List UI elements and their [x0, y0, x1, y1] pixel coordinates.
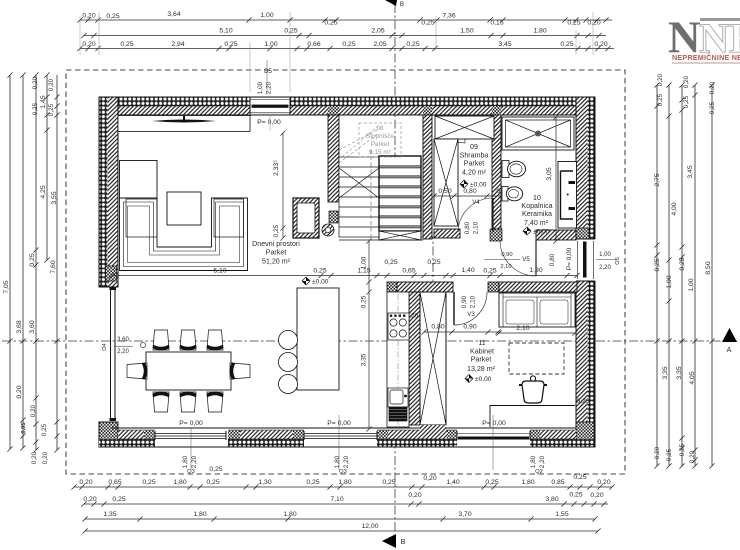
svg-text:5,10: 5,10	[219, 28, 232, 35]
svg-text:0,25: 0,25	[679, 443, 686, 456]
svg-text:0,20: 0,20	[587, 20, 600, 27]
svg-text:2,10: 2,10	[516, 325, 529, 332]
svg-text:3,35: 3,35	[361, 353, 368, 366]
svg-text:1,00: 1,00	[257, 81, 264, 94]
svg-text:Parket: Parket	[471, 356, 492, 364]
svg-text:3,05: 3,05	[546, 167, 553, 180]
svg-text:10: 10	[533, 194, 541, 202]
svg-text:3,35: 3,35	[662, 366, 669, 379]
svg-text:2,20: 2,20	[266, 81, 273, 94]
svg-text:0,25: 0,25	[209, 466, 222, 473]
svg-text:1,80: 1,80	[193, 511, 206, 518]
svg-text:13,28 m²: 13,28 m²	[467, 365, 496, 373]
svg-text:±0,00: ±0,00	[533, 229, 550, 236]
svg-text:2,75: 2,75	[654, 173, 661, 186]
svg-text:0,25: 0,25	[313, 268, 326, 275]
svg-text:D5: D5	[264, 68, 272, 75]
svg-text:0,20: 0,20	[657, 73, 664, 86]
svg-text:0,25: 0,25	[206, 479, 219, 486]
svg-text:1,30: 1,30	[258, 479, 271, 486]
svg-text:3,64: 3,64	[167, 11, 180, 18]
svg-text:P= 0,00: P= 0,00	[179, 420, 203, 427]
svg-text:0,20: 0,20	[689, 450, 696, 463]
svg-text:6,15 m²: 6,15 m²	[369, 149, 391, 156]
svg-text:Kopalnica: Kopalnica	[521, 202, 552, 210]
svg-text:0,25: 0,25	[560, 41, 573, 48]
svg-text:4,05: 4,05	[689, 371, 696, 384]
svg-text:11: 11	[478, 339, 485, 347]
svg-text:0,25: 0,25	[654, 258, 661, 271]
svg-text:0,80: 0,80	[549, 253, 556, 266]
svg-text:4,20 m²: 4,20 m²	[462, 169, 487, 177]
svg-text:0,90: 0,90	[463, 324, 476, 331]
svg-text:V5: V5	[522, 256, 530, 263]
svg-text:4,00: 4,00	[671, 202, 678, 215]
svg-text:1,80: 1,80	[182, 455, 189, 468]
svg-text:1,40: 1,40	[461, 267, 474, 274]
svg-text:0,25: 0,25	[573, 474, 586, 481]
svg-text:7,40 m²: 7,40 m²	[524, 219, 549, 227]
svg-text:2,33⁵: 2,33⁵	[273, 160, 280, 176]
svg-text:1,50: 1,50	[460, 28, 473, 35]
svg-text:Dnevni prostori: Dnevni prostori	[252, 240, 300, 248]
svg-text:0,25: 0,25	[666, 448, 673, 461]
svg-text:Keramika: Keramika	[522, 210, 552, 218]
svg-text:0,25: 0,25	[142, 479, 155, 486]
svg-text:0,05: 0,05	[21, 422, 27, 434]
svg-text:0,25: 0,25	[32, 102, 39, 115]
svg-text:0,25: 0,25	[112, 496, 125, 503]
svg-text:1,45: 1,45	[40, 95, 47, 108]
svg-text:0,20: 0,20	[654, 446, 661, 459]
svg-text:0,25: 0,25	[427, 259, 440, 266]
svg-text:2,10: 2,10	[473, 221, 480, 234]
svg-text:P= 0,00: P= 0,00	[566, 247, 573, 270]
svg-text:1,80: 1,80	[173, 479, 186, 486]
svg-text:1,80: 1,80	[338, 479, 351, 486]
svg-text:0,80: 0,80	[464, 221, 471, 234]
svg-text:0,20: 0,20	[423, 475, 436, 482]
svg-text:1,00: 1,00	[666, 275, 673, 288]
svg-text:0,20: 0,20	[683, 75, 690, 88]
svg-text:0,25: 0,25	[342, 41, 355, 48]
svg-text:0,25: 0,25	[382, 479, 395, 486]
svg-text:1,00: 1,00	[264, 41, 277, 48]
svg-text:3,35: 3,35	[676, 366, 683, 379]
svg-text:08: 08	[376, 125, 384, 132]
svg-text:2,05: 2,05	[373, 41, 386, 48]
svg-text:0,20: 0,20	[42, 451, 49, 464]
svg-text:0,50: 0,50	[438, 188, 451, 195]
svg-text:0,25: 0,25	[48, 103, 55, 116]
svg-text:0,65: 0,65	[108, 479, 121, 486]
svg-text:0,25: 0,25	[709, 101, 716, 114]
svg-text:0,25: 0,25	[657, 93, 664, 106]
svg-text:1,55: 1,55	[555, 511, 568, 518]
svg-text:0,25: 0,25	[421, 20, 434, 27]
svg-text:2,94: 2,94	[171, 41, 184, 48]
svg-text:3,45: 3,45	[498, 41, 511, 48]
svg-text:2,20: 2,20	[117, 349, 129, 355]
svg-text:1,80: 1,80	[530, 455, 537, 468]
svg-text:2,10: 2,10	[500, 264, 511, 270]
svg-text:0,20: 0,20	[597, 479, 610, 486]
svg-text:±0,00: ±0,00	[312, 279, 329, 286]
svg-text:2,10: 2,10	[470, 295, 477, 308]
svg-text:0,20: 0,20	[83, 496, 96, 503]
svg-text:0,25: 0,25	[120, 41, 133, 48]
svg-text:7,36: 7,36	[442, 13, 455, 20]
svg-text:O4: O4	[102, 343, 108, 350]
svg-text:P= 0,00: P= 0,00	[257, 119, 281, 126]
svg-text:±0,00: ±0,00	[475, 376, 492, 383]
svg-text:2,20: 2,20	[539, 455, 546, 468]
svg-text:1,00: 1,00	[688, 278, 695, 291]
svg-text:0,25: 0,25	[683, 95, 690, 108]
svg-text:Q3: Q3	[187, 469, 195, 475]
svg-text:1,35: 1,35	[103, 511, 116, 518]
svg-text:0,25: 0,25	[569, 492, 582, 499]
svg-text:V3: V3	[467, 311, 475, 318]
svg-text:0,25: 0,25	[384, 259, 397, 266]
svg-text:0,25: 0,25	[485, 479, 498, 486]
svg-text:0,15: 0,15	[490, 20, 503, 27]
svg-text:7,10: 7,10	[330, 496, 343, 503]
svg-text:1,40: 1,40	[446, 479, 459, 486]
svg-text:2,05: 2,05	[371, 28, 384, 35]
svg-text:0,90: 0,90	[501, 252, 512, 258]
svg-text:0,20: 0,20	[82, 13, 95, 20]
svg-text:0,25: 0,25	[406, 41, 419, 48]
svg-text:Q3: Q3	[339, 469, 347, 475]
svg-text:1,80: 1,80	[521, 479, 534, 486]
svg-text:0,25: 0,25	[483, 268, 496, 275]
svg-text:7,05: 7,05	[3, 280, 10, 293]
svg-text:Kabinet: Kabinet	[470, 348, 494, 356]
svg-text:0,25: 0,25	[679, 257, 686, 270]
svg-text:3,80: 3,80	[545, 496, 558, 503]
svg-text:12,00: 12,00	[361, 523, 378, 530]
svg-text:0,20: 0,20	[79, 479, 92, 486]
svg-text:0,80: 0,80	[431, 324, 444, 331]
svg-text:0,25: 0,25	[567, 20, 580, 27]
svg-text:09: 09	[470, 143, 478, 151]
svg-text:0,25: 0,25	[224, 41, 237, 48]
svg-text:O5: O5	[615, 257, 621, 264]
svg-text:0,20: 0,20	[594, 41, 607, 48]
svg-text:0,20: 0,20	[32, 76, 39, 89]
svg-text:Parket: Parket	[371, 141, 390, 148]
svg-text:2,20: 2,20	[343, 455, 350, 468]
svg-text:3,60: 3,60	[117, 337, 129, 343]
svg-text:0,85: 0,85	[551, 479, 564, 486]
svg-text:0,90: 0,90	[461, 295, 468, 308]
svg-text:0,25: 0,25	[106, 13, 119, 20]
svg-text:1,00: 1,00	[260, 12, 273, 19]
svg-text:3,55: 3,55	[51, 191, 58, 204]
svg-text:1,00: 1,00	[599, 252, 611, 258]
svg-text:Parket: Parket	[464, 160, 485, 168]
svg-text:2,20: 2,20	[191, 455, 198, 468]
svg-text:1,80: 1,80	[529, 267, 542, 274]
svg-text:1,80: 1,80	[334, 455, 341, 468]
svg-text:0,20: 0,20	[709, 81, 716, 94]
svg-text:0,66: 0,66	[307, 41, 320, 48]
svg-text:4,25: 4,25	[40, 185, 47, 198]
svg-text:0,20: 0,20	[82, 41, 95, 48]
svg-text:3,45: 3,45	[687, 165, 694, 178]
svg-text:0,25: 0,25	[29, 253, 36, 266]
svg-text:0,80: 0,80	[463, 188, 476, 195]
svg-text:V4: V4	[472, 199, 480, 206]
svg-text:Parket: Parket	[266, 249, 287, 257]
svg-text:1,00: 1,00	[361, 256, 368, 269]
svg-text:Q2: Q2	[535, 469, 543, 475]
svg-text:Stopnišče: Stopnišče	[366, 133, 395, 140]
svg-text:A: A	[727, 345, 732, 354]
svg-text:8,50: 8,50	[705, 261, 712, 274]
svg-text:0,20: 0,20	[408, 492, 421, 499]
svg-text:5,10: 5,10	[213, 268, 226, 275]
svg-text:B: B	[401, 537, 406, 546]
svg-text:51,20 m²: 51,20 m²	[262, 258, 291, 266]
svg-text:0,25: 0,25	[576, 398, 589, 405]
svg-text:B: B	[400, 1, 404, 8]
svg-text:0,25: 0,25	[361, 295, 368, 308]
svg-text:0,25: 0,25	[273, 224, 280, 237]
svg-text:0,20: 0,20	[30, 404, 37, 417]
svg-text:0,25: 0,25	[41, 423, 48, 436]
svg-text:0,25: 0,25	[284, 28, 297, 35]
svg-text:2,20: 2,20	[599, 265, 611, 271]
svg-text:0,20: 0,20	[16, 385, 23, 398]
svg-text:0,25: 0,25	[306, 479, 319, 486]
svg-text:0,20: 0,20	[31, 451, 38, 464]
svg-text:1,80: 1,80	[283, 511, 296, 518]
svg-text:7,60: 7,60	[50, 260, 57, 273]
svg-text:0,25: 0,25	[324, 20, 337, 27]
svg-text:3,60: 3,60	[29, 320, 36, 333]
svg-text:3,68: 3,68	[16, 320, 23, 333]
svg-text:P= 0,00: P= 0,00	[482, 420, 506, 427]
svg-text:0,65: 0,65	[402, 268, 415, 275]
svg-text:1,80: 1,80	[533, 28, 546, 35]
svg-text:Shramba: Shramba	[460, 152, 489, 160]
svg-text:0,20: 0,20	[48, 78, 55, 91]
svg-text:0,20: 0,20	[590, 492, 603, 499]
svg-text:3,70: 3,70	[458, 511, 471, 518]
svg-text:NEPREMIČNINE NE: NEPREMIČNINE NE	[672, 53, 740, 62]
